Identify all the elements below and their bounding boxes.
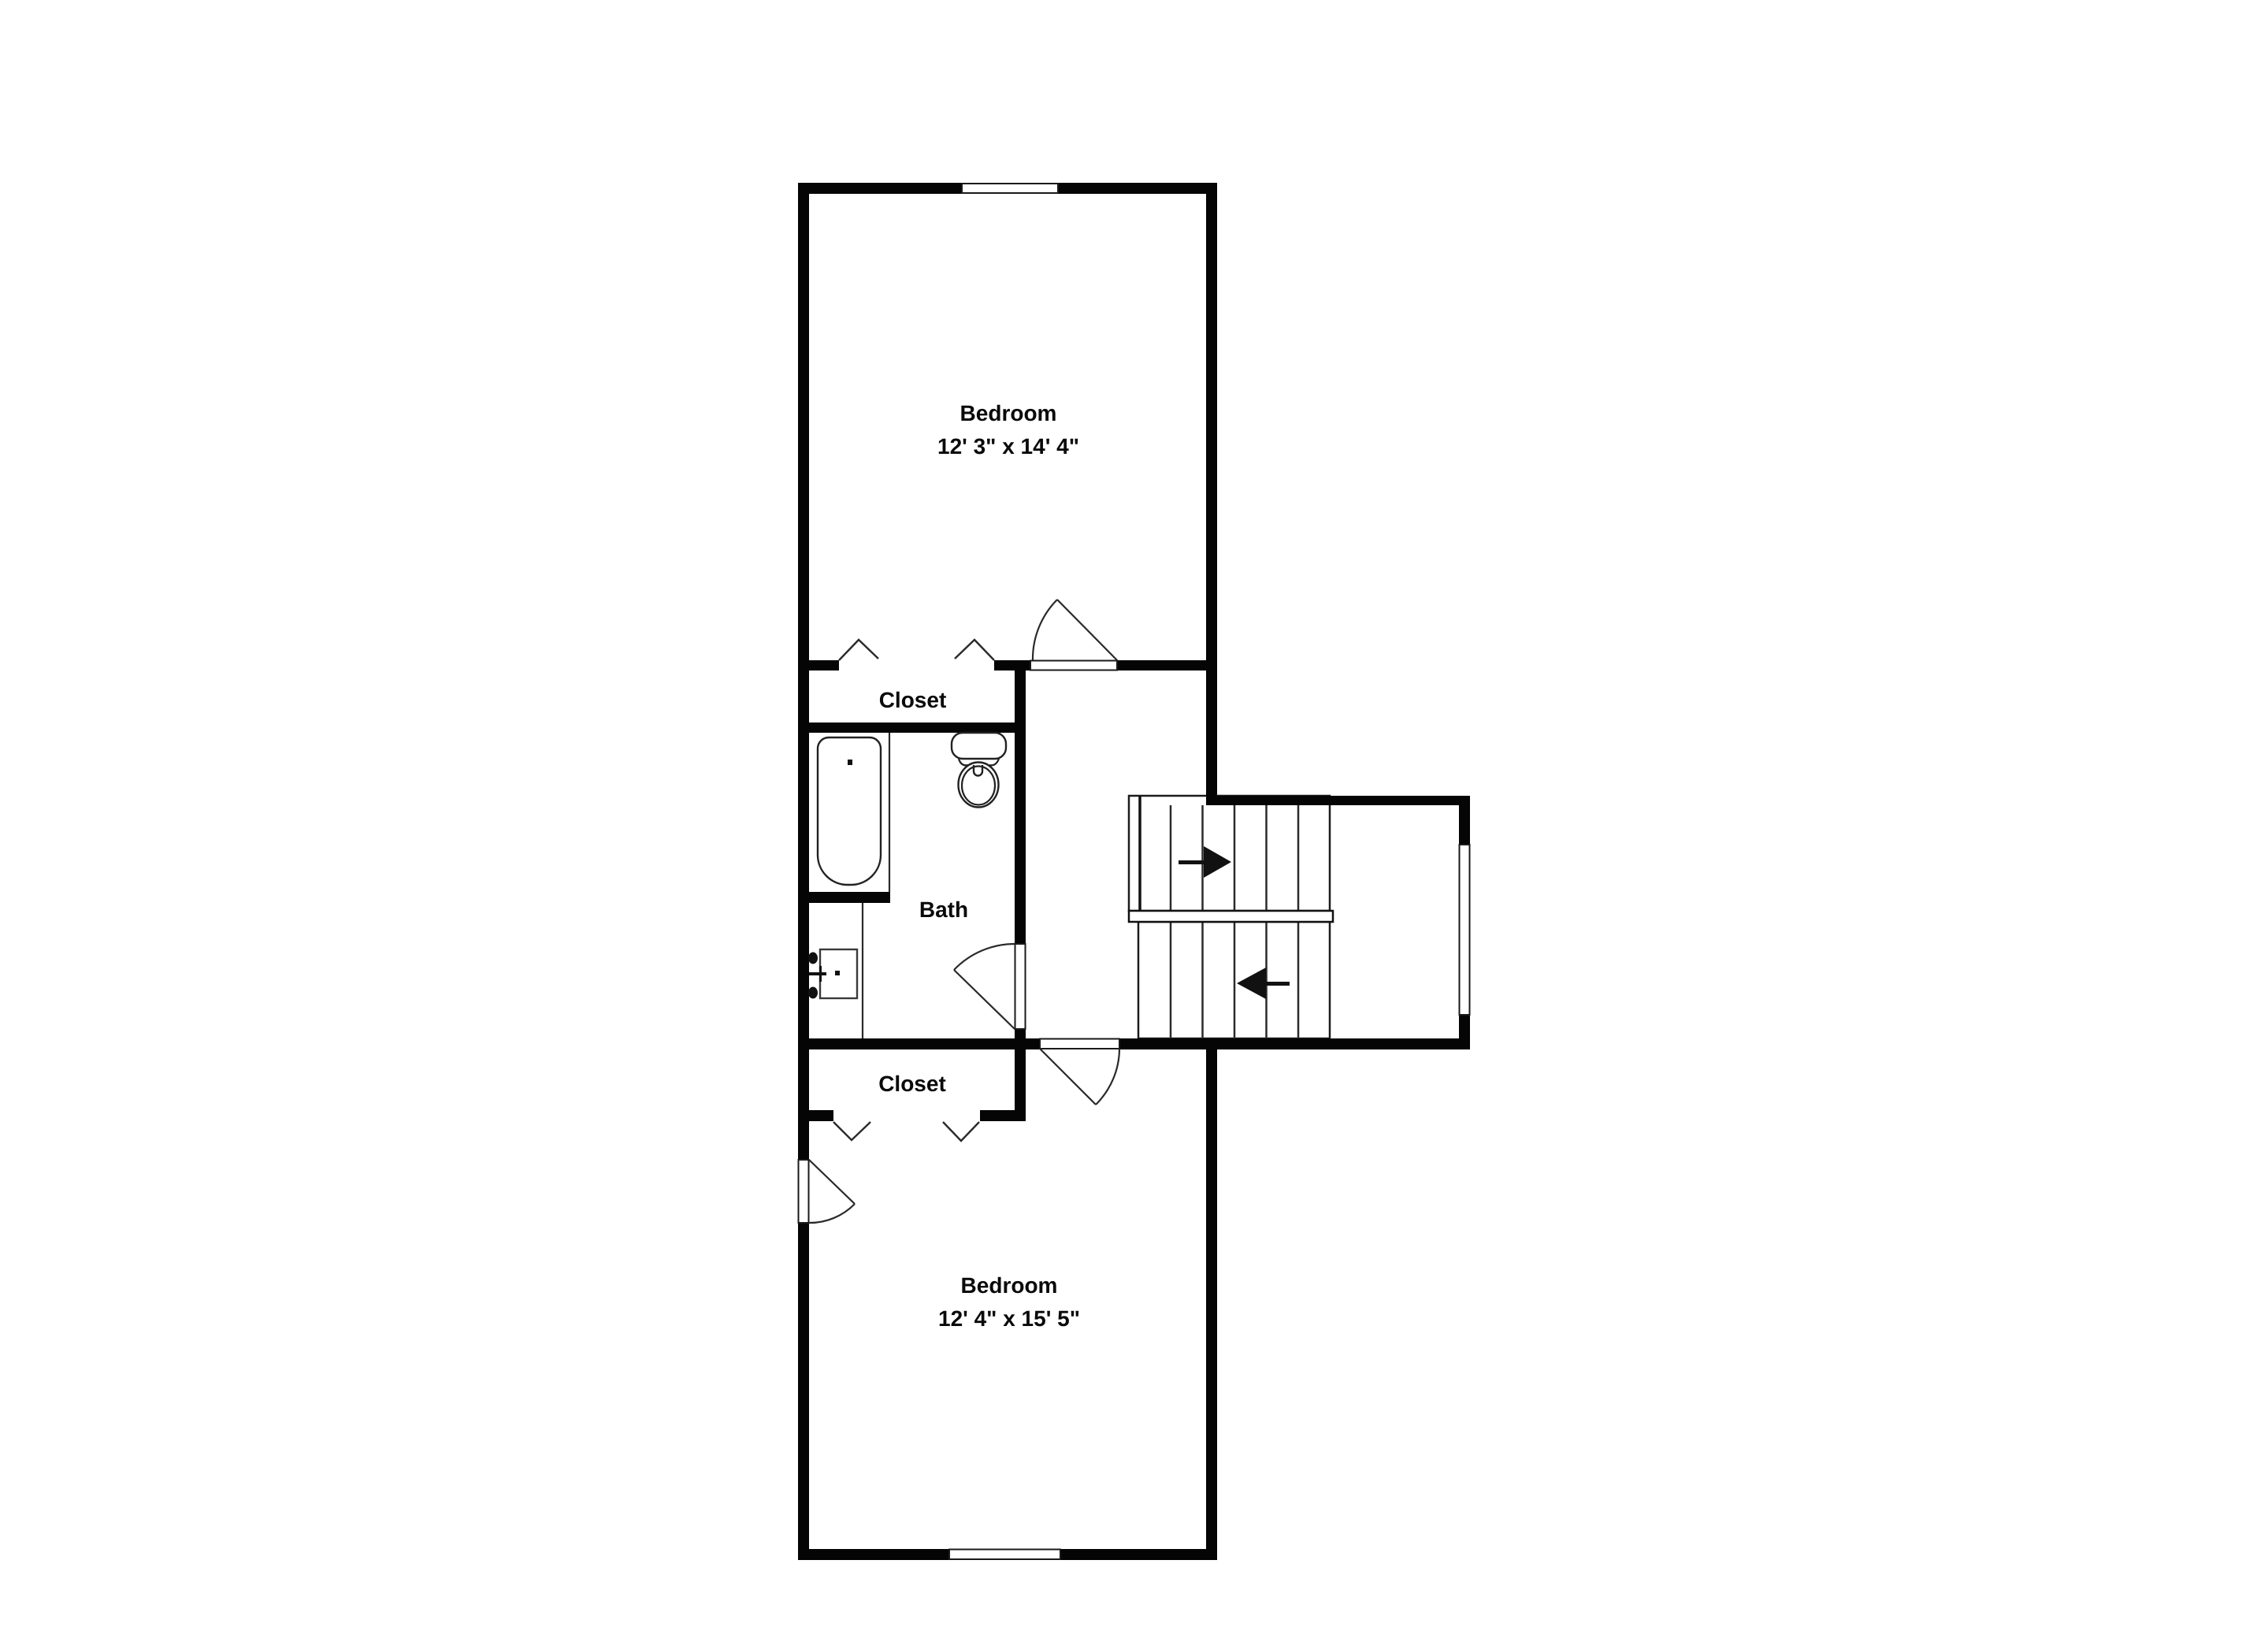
svg-text:Bath: Bath (919, 897, 968, 922)
svg-text:Bedroom: Bedroom (960, 401, 1057, 425)
svg-text:Closet: Closet (878, 1072, 946, 1096)
svg-text:12' 4" x 15' 5": 12' 4" x 15' 5" (938, 1306, 1080, 1331)
svg-text:12' 3" x 14' 4": 12' 3" x 14' 4" (937, 434, 1079, 459)
svg-text:Bedroom: Bedroom (961, 1273, 1058, 1298)
svg-text:Closet: Closet (879, 688, 947, 712)
